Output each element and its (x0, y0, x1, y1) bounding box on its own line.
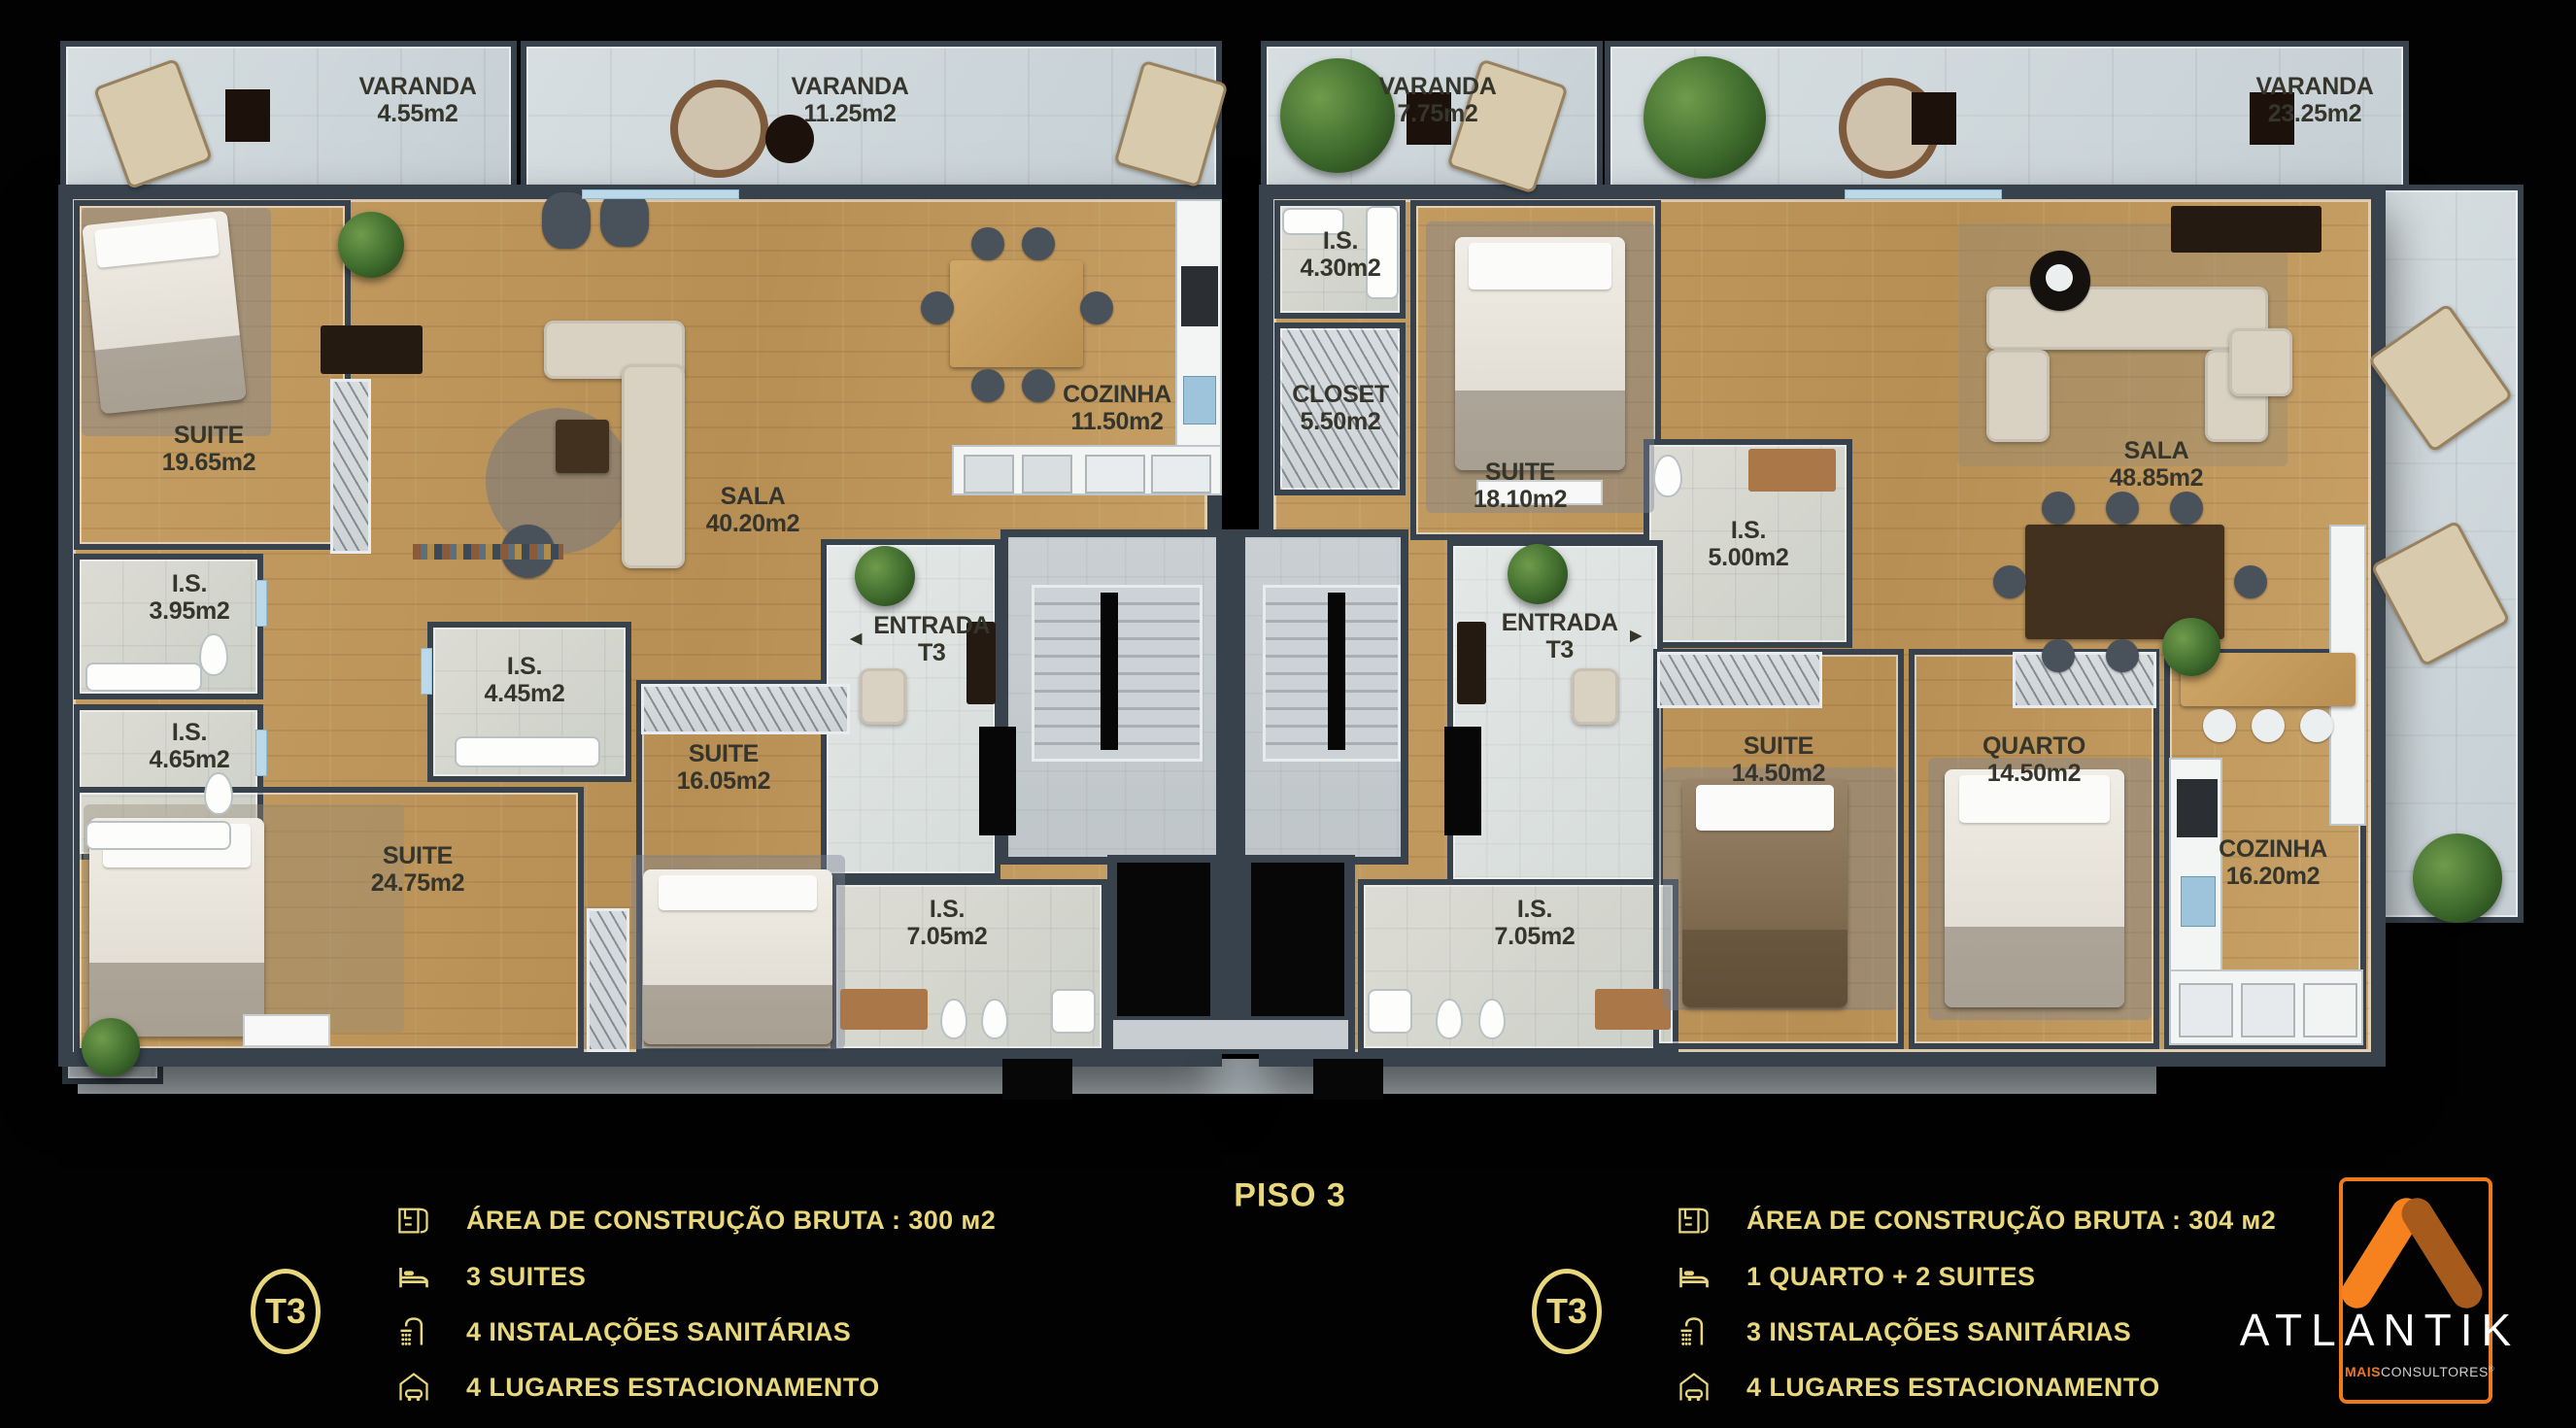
balcony-slider (583, 190, 738, 198)
armchair (600, 190, 649, 247)
blueprint-icon (1677, 1203, 1712, 1238)
car-garage-icon (396, 1370, 431, 1405)
vanity-sink (85, 821, 231, 850)
room-name: ENTRADA (873, 612, 990, 639)
wardrobe-hatch (641, 684, 850, 734)
room-area: 16.20m2 (2226, 863, 2321, 890)
registered-mark: ® (2489, 1364, 2494, 1373)
room-area: 4.30m2 (1301, 255, 1381, 282)
bed (82, 211, 247, 415)
room-area: 23.25m2 (2268, 100, 2362, 127)
entrance-arrow-left-icon: ◄ (846, 628, 866, 651)
room-area: 18.10m2 (1474, 486, 1568, 513)
cooktop (2177, 779, 2218, 837)
terrace-plant (2413, 833, 2502, 923)
room-area: 11.25m2 (803, 100, 896, 127)
legend-text: 3 INSTALAÇÕES SANITÁRIAS (1746, 1317, 2131, 1347)
party-wall (1216, 532, 1245, 1010)
shaft-pit (1002, 1059, 1072, 1100)
fridge (1085, 455, 1145, 493)
bed (643, 869, 832, 1044)
duct-closet (1444, 727, 1481, 835)
wardrobe-hatch (587, 908, 629, 1052)
legend-text: 3 SUITES (466, 1262, 586, 1292)
shower-icon (396, 1314, 431, 1349)
label-cozinha-1150: COZINHA 11.50m2 (1063, 381, 1171, 435)
t3-badge-right: T3 (1532, 1269, 1602, 1354)
room-area: 7.05m2 (907, 923, 988, 950)
cooktop (1181, 266, 1218, 326)
kitchen-counter (1175, 199, 1222, 447)
entrance-text: ENTRADA T3 (873, 612, 990, 666)
room-name: SUITE (174, 422, 244, 449)
room-area: 5.00m2 (1709, 544, 1789, 571)
toilet (1653, 455, 1682, 497)
tv-console (321, 325, 423, 374)
subtitle-rest: CONSULTORES (2381, 1364, 2489, 1379)
dining-chair (971, 227, 1004, 260)
indoor-plant (338, 212, 404, 278)
duct-closet (979, 727, 1016, 835)
label-suite-1965: SUITE 19.65m2 (162, 422, 256, 476)
label-entrada-left: ◄ ENTRADA T3 (846, 612, 991, 666)
label-varanda-775: VARANDA 7.75m2 (1378, 73, 1496, 127)
toilet (204, 772, 233, 815)
shower-tray (1051, 989, 1096, 1034)
legend-text: 1 QUARTO + 2 SUITES (1746, 1262, 2035, 1292)
dining-chair (2106, 639, 2139, 672)
legend-row: 4 LUGARES ESTACIONAMENTO (396, 1370, 880, 1405)
room-name: I.S. (507, 653, 542, 680)
room-area: T3 (918, 639, 946, 666)
label-suite-1450: SUITE 14.50m2 (1732, 732, 1826, 787)
room-name: QUARTO (1983, 732, 2085, 760)
indoor-plant (855, 546, 915, 606)
bed (1682, 779, 1847, 1007)
shower-tray (1368, 989, 1412, 1034)
door-mark (256, 731, 266, 775)
entry-armchair (1572, 668, 1618, 725)
label-is-395: I.S. 3.95m2 (150, 570, 230, 625)
bench (243, 1014, 330, 1047)
room-name: I.S. (172, 719, 207, 746)
legend-row: 4 LUGARES ESTACIONAMENTO (1677, 1370, 2160, 1405)
legend-row: 3 INSTALAÇÕES SANITÁRIAS (1677, 1314, 2131, 1349)
legend-text: ÁREA DE CONSTRUÇÃO BRUTA : 300 м2 (466, 1206, 996, 1236)
bed (89, 818, 264, 1037)
room-name: I.S. (172, 570, 207, 597)
door-mark (422, 649, 431, 694)
dining-chair (2042, 639, 2075, 672)
shower-icon (1677, 1314, 1712, 1349)
label-is-705-left: I.S. 7.05m2 (907, 896, 988, 950)
bed-icon (396, 1259, 431, 1294)
label-suite-1605: SUITE 16.05m2 (677, 740, 771, 795)
room-name: CLOSET (1292, 381, 1389, 408)
stool (2252, 709, 2285, 742)
wardrobe-hatch (330, 379, 371, 554)
room-name: I.S. (1517, 896, 1552, 923)
stool (2203, 709, 2236, 742)
room-name: SUITE (689, 740, 759, 767)
door-mark (256, 581, 266, 626)
t3-badge-text: T3 (265, 1291, 306, 1332)
room-area: 14.50m2 (1987, 760, 2082, 787)
room-name: SUITE (383, 842, 453, 869)
balcony-slider (1846, 190, 2001, 198)
entrance-text: ENTRADA T3 (1502, 609, 1618, 663)
hanging-chair (670, 80, 768, 178)
room-name: SALA (2124, 437, 2189, 464)
planter-plant (82, 1018, 140, 1076)
label-sala-4885: SALA 48.85m2 (2110, 437, 2204, 492)
label-cozinha-1620: COZINHA 16.20m2 (2219, 835, 2327, 890)
tv-console (2171, 206, 2322, 253)
dining-chair (2234, 565, 2267, 598)
dining-chair (971, 369, 1004, 402)
dining-chair (1993, 565, 2026, 598)
legend-text: 4 INSTALAÇÕES SANITÁRIAS (466, 1317, 851, 1347)
kitchen-sink (2181, 876, 2216, 927)
dining-chair (2106, 492, 2139, 525)
room-name: ENTRADA (1502, 609, 1618, 636)
oven (1022, 455, 1072, 493)
legend-text: ÁREA DE CONSTRUÇÃO BRUTA : 304 м2 (1746, 1206, 2276, 1236)
stool (2300, 709, 2333, 742)
room-area: 7.05m2 (1495, 923, 1576, 950)
bed (1945, 769, 2124, 1007)
label-quarto-1450: QUARTO 14.50m2 (1983, 732, 2085, 787)
label-suite-2475: SUITE 24.75m2 (371, 842, 465, 897)
stair-rail (1101, 593, 1118, 750)
t3-badge-left: T3 (251, 1269, 321, 1354)
room-name: I.S. (1323, 227, 1358, 255)
ottoman (2229, 328, 2292, 396)
dining-chair (921, 291, 954, 324)
dishwasher (2241, 983, 2295, 1037)
room-name: VARANDA (2255, 73, 2373, 100)
legend-text: 4 LUGARES ESTACIONAMENTO (1746, 1373, 2160, 1403)
toilet (940, 999, 967, 1039)
room-area: 14.50m2 (1732, 760, 1826, 787)
legend-row: 1 QUARTO + 2 SUITES (1677, 1259, 2035, 1294)
legend-text: 4 LUGARES ESTACIONAMENTO (466, 1373, 880, 1403)
bidet (981, 999, 1008, 1039)
armchair (542, 192, 591, 249)
core-landing (1113, 1020, 1348, 1049)
dining-chair (2170, 492, 2203, 525)
label-suite-1810: SUITE 18.10m2 (1474, 459, 1568, 513)
indoor-plant (2162, 618, 2220, 676)
cabinet (1151, 455, 1211, 493)
label-varanda-455: VARANDA 4.55m2 (358, 73, 476, 127)
toilet (1436, 999, 1463, 1039)
shaft-pit (1313, 1059, 1383, 1100)
dining-chair (1022, 227, 1055, 260)
balcony-plant (1280, 58, 1395, 173)
room-area: 7.75m2 (1397, 100, 1477, 127)
entrance-arrow-right-icon: ► (1626, 625, 1646, 648)
entry-armchair (860, 668, 906, 725)
stair-rail (1328, 593, 1345, 750)
elevator-shaft (1117, 863, 1210, 1016)
room-area: 3.95m2 (150, 597, 230, 625)
room-name: SALA (721, 483, 786, 510)
room-area: 11.50m2 (1070, 408, 1163, 435)
label-is-705-right: I.S. 7.05m2 (1495, 896, 1576, 950)
label-varanda-1125: VARANDA 11.25m2 (791, 73, 908, 127)
dining-chair (1022, 369, 1055, 402)
room-area: 4.45m2 (485, 680, 565, 707)
atlantik-wordmark: ATLANTIK (2234, 1304, 2525, 1356)
oven (2179, 983, 2233, 1037)
blueprint-icon (396, 1203, 431, 1238)
coffee-table (556, 420, 609, 473)
label-is-465: I.S. 4.65m2 (150, 719, 230, 773)
legend-row: 4 INSTALAÇÕES SANITÁRIAS (396, 1314, 851, 1349)
bed (1455, 237, 1625, 470)
room-area: 24.75m2 (371, 869, 465, 897)
room-name: VARANDA (358, 73, 476, 100)
room-area: 4.65m2 (150, 746, 230, 773)
legend-row: ÁREA DE CONSTRUÇÃO BRUTA : 304 м2 (1677, 1203, 2276, 1238)
planter-dark (225, 89, 270, 142)
room-area: 48.85m2 (2110, 464, 2204, 492)
room-area: 4.55m2 (377, 100, 458, 127)
vanity-sink (455, 736, 600, 767)
dining-chair (1080, 291, 1113, 324)
sofa (1986, 350, 2050, 442)
room-area: 19.65m2 (162, 449, 256, 476)
room-name: COZINHA (2219, 835, 2327, 863)
fridge (2303, 983, 2357, 1037)
dining-table (950, 260, 1083, 367)
label-is-430: I.S. 4.30m2 (1301, 227, 1381, 282)
room-area: 40.20m2 (706, 510, 800, 537)
kitchen-sink (1183, 376, 1216, 425)
label-entrada-right: ENTRADA T3 ► (1502, 609, 1646, 663)
room-name: COZINHA (1063, 381, 1171, 408)
car-garage-icon (1677, 1370, 1712, 1405)
dining-chair (2042, 492, 2075, 525)
room-area: 5.50m2 (1301, 408, 1381, 435)
sofa (1986, 287, 2268, 350)
legend-row: 3 SUITES (396, 1259, 586, 1294)
kitchen-counter (2169, 758, 2222, 971)
room-name: VARANDA (1378, 73, 1496, 100)
indoor-plant (1508, 544, 1568, 604)
room-area: 16.05m2 (677, 767, 771, 795)
atlantik-subtitle: MAISCONSULTORES® (2345, 1364, 2494, 1379)
subtitle-bold: MAIS (2345, 1364, 2381, 1379)
label-sala-4020: SALA 40.20m2 (706, 483, 800, 537)
label-varanda-2325: VARANDA 23.25m2 (2255, 73, 2373, 127)
room-area: T3 (1545, 636, 1574, 663)
room-name: I.S. (930, 896, 965, 923)
room-name: SUITE (1744, 732, 1813, 760)
t3-badge-text: T3 (1546, 1291, 1587, 1332)
floor-title: PISO 3 (1234, 1177, 1346, 1215)
kitchen-counter (2169, 969, 2363, 1045)
room-name: VARANDA (791, 73, 908, 100)
legend-row: ÁREA DE CONSTRUÇÃO BRUTA : 300 м2 (396, 1203, 996, 1238)
floorplan-canvas: VARANDA 4.55m2 VARANDA 11.25m2 VARANDA 7… (0, 0, 2576, 1428)
kitchen-counter (952, 445, 1222, 495)
toilet (199, 633, 228, 676)
vanity-sink (85, 663, 202, 692)
planter-dark (1912, 92, 1956, 145)
bed-icon (1677, 1259, 1712, 1294)
label-is-445: I.S. 4.45m2 (485, 653, 565, 707)
bookshelf (413, 544, 563, 560)
sofa (622, 364, 685, 568)
label-closet-550: CLOSET 5.50m2 (1292, 381, 1389, 435)
entry-console (1457, 622, 1486, 704)
wood-vanity (840, 989, 928, 1030)
room-name: I.S. (1731, 517, 1766, 544)
wardrobe-hatch (1657, 652, 1822, 708)
wood-vanity (1595, 989, 1671, 1030)
elevator-shaft (1251, 863, 1344, 1016)
oven (964, 455, 1014, 493)
tray (2046, 264, 2073, 291)
wood-vanity (1748, 449, 1836, 492)
bidet (1478, 999, 1506, 1039)
balcony-plant (1644, 56, 1766, 179)
label-is-500: I.S. 5.00m2 (1709, 517, 1789, 571)
room-name: SUITE (1485, 459, 1555, 486)
